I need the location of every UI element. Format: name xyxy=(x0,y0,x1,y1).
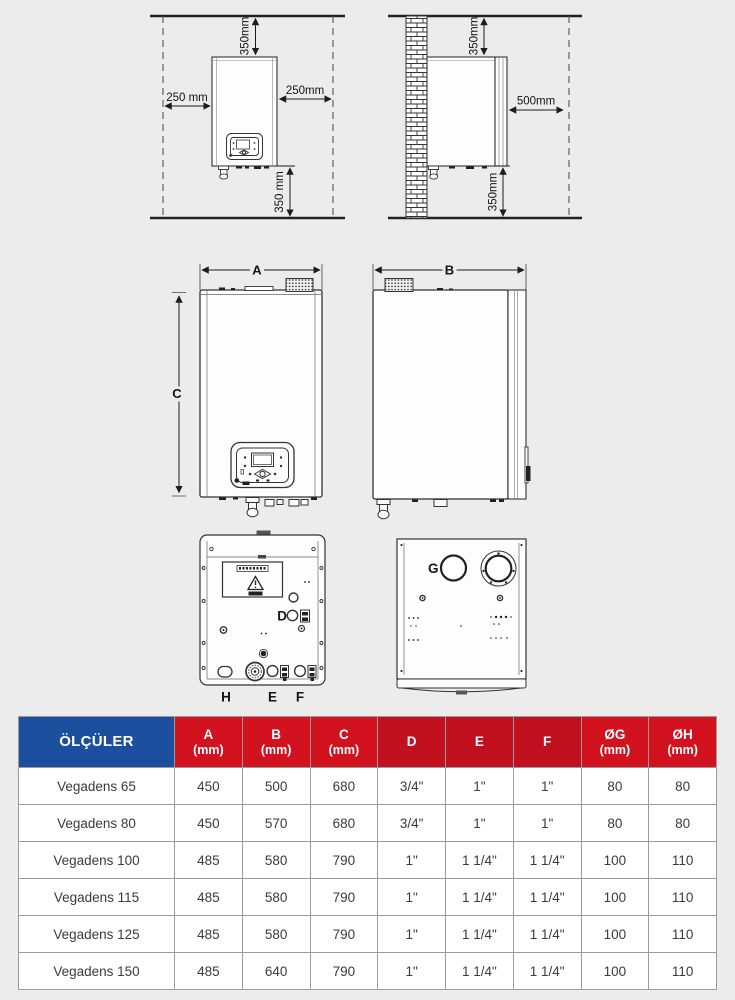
col-header-f: F xyxy=(513,717,581,768)
dim-label-d: D xyxy=(277,609,287,624)
clearance-front-top-label: 350mm xyxy=(240,17,252,55)
table-cell: 110 xyxy=(649,879,717,916)
table-cell: 80 xyxy=(649,768,717,805)
table-cell: 1 1/4" xyxy=(446,953,514,990)
dim-label-f: F xyxy=(296,690,304,705)
dim-label-e: E xyxy=(268,690,277,705)
table-cell: 1 1/4" xyxy=(446,842,514,879)
model-cell: Vegadens 150 xyxy=(19,953,175,990)
clearance-front-right-label: 250mm xyxy=(286,85,324,97)
table-cell: 1 1/4" xyxy=(513,916,581,953)
control-panel xyxy=(231,443,294,488)
dimensions-table: ÖLÇÜLER A(mm) B(mm) C(mm) D E F ØG(mm) Ø… xyxy=(18,716,717,990)
table-cell: 3/4" xyxy=(378,805,446,842)
table-cell: 580 xyxy=(242,842,310,879)
col-header-oh: ØH(mm) xyxy=(649,717,717,768)
col-header-b: B(mm) xyxy=(242,717,310,768)
boiler-side-view xyxy=(373,279,531,519)
table-cell: 450 xyxy=(175,805,243,842)
dim-label-g: G xyxy=(428,561,439,576)
dim-label-h: H xyxy=(221,690,231,705)
clearance-side-front-label: 500mm xyxy=(517,96,555,108)
table-cell: 580 xyxy=(242,879,310,916)
pump-knob xyxy=(246,663,264,681)
table-cell: 1" xyxy=(378,842,446,879)
table-cell: 80 xyxy=(581,768,649,805)
table-cell: 790 xyxy=(310,953,378,990)
model-cell: Vegadens 65 xyxy=(19,768,175,805)
table-cell: 1" xyxy=(446,768,514,805)
clearance-front-diagram: 350mm 250 mm 250mm 350 mm xyxy=(150,16,345,218)
table-cell: 1 1/4" xyxy=(513,879,581,916)
boiler-side-small xyxy=(427,57,507,179)
table-cell: 450 xyxy=(175,768,243,805)
clearance-front-bottom-label: 350 mm xyxy=(274,171,286,213)
table-cell: 485 xyxy=(175,842,243,879)
col-header-olculer: ÖLÇÜLER xyxy=(19,717,175,768)
model-cell: Vegadens 80 xyxy=(19,805,175,842)
clearance-side-top-label: 350mm xyxy=(469,17,481,55)
table-cell: 485 xyxy=(175,879,243,916)
boiler-dimension-sheet: 350mm 250 mm 250mm 350 mm 350mm 500mm 35… xyxy=(0,0,735,1000)
table-cell: 680 xyxy=(310,768,378,805)
front-view-diagram: A C xyxy=(170,263,323,517)
col-header-c: C(mm) xyxy=(310,717,378,768)
bottom-fittings-front xyxy=(246,498,308,517)
table-cell: 3/4" xyxy=(378,768,446,805)
table-row: Vegadens 115 485 580 790 1" 1 1/4" 1 1/4… xyxy=(19,879,717,916)
table-cell: 1" xyxy=(378,953,446,990)
table-cell: 110 xyxy=(649,916,717,953)
model-cell: Vegadens 100 xyxy=(19,842,175,879)
col-header-d: D xyxy=(378,717,446,768)
table-cell: 100 xyxy=(581,916,649,953)
side-view-diagram: B xyxy=(373,263,531,519)
table-row: Vegadens 65 450 500 680 3/4" 1" 1" 80 80 xyxy=(19,768,717,805)
table-cell: 680 xyxy=(310,805,378,842)
col-header-og: ØG(mm) xyxy=(581,717,649,768)
top-view-diagram: G xyxy=(397,539,526,695)
boiler-front-small xyxy=(212,57,277,179)
brick-wall xyxy=(406,16,427,218)
table-cell: 485 xyxy=(175,953,243,990)
table-cell: 1 1/4" xyxy=(446,879,514,916)
table-cell: 80 xyxy=(581,805,649,842)
table-header-row: ÖLÇÜLER A(mm) B(mm) C(mm) D E F ØG(mm) Ø… xyxy=(19,717,717,768)
table-cell: 1" xyxy=(513,805,581,842)
dim-label-a: A xyxy=(252,263,262,278)
top-grille-side xyxy=(385,279,413,292)
col-header-a: A(mm) xyxy=(175,717,243,768)
top-grille xyxy=(286,279,313,292)
table-row: Vegadens 80 450 570 680 3/4" 1" 1" 80 80 xyxy=(19,805,717,842)
table-cell: 110 xyxy=(649,842,717,879)
clearance-side-bottom-label: 350mm xyxy=(488,173,500,211)
bottom-view-diagram: D xyxy=(200,531,325,705)
col-header-e: E xyxy=(446,717,514,768)
terminal-panel xyxy=(223,562,283,597)
dim-label-c: C xyxy=(172,386,182,401)
table-cell: 100 xyxy=(581,953,649,990)
table-cell: 110 xyxy=(649,953,717,990)
connection-g xyxy=(441,556,466,581)
table-cell: 790 xyxy=(310,879,378,916)
table-cell: 570 xyxy=(242,805,310,842)
table-cell: 1" xyxy=(378,879,446,916)
clearance-side-diagram: 350mm 500mm 350mm xyxy=(388,16,582,218)
table-cell: 1 1/4" xyxy=(513,953,581,990)
table-cell: 485 xyxy=(175,916,243,953)
table-cell: 100 xyxy=(581,842,649,879)
table-cell: 1" xyxy=(446,805,514,842)
technical-drawings: 350mm 250 mm 250mm 350 mm 350mm 500mm 35… xyxy=(0,0,735,715)
table-row: Vegadens 100 485 580 790 1" 1 1/4" 1 1/4… xyxy=(19,842,717,879)
table-row: Vegadens 150 485 640 790 1" 1 1/4" 1 1/4… xyxy=(19,953,717,990)
boiler-front-view xyxy=(200,279,322,517)
table-cell: 1 1/4" xyxy=(513,842,581,879)
table-cell: 1" xyxy=(513,768,581,805)
table-cell: 790 xyxy=(310,916,378,953)
table-cell: 790 xyxy=(310,842,378,879)
table-cell: 640 xyxy=(242,953,310,990)
model-cell: Vegadens 125 xyxy=(19,916,175,953)
dim-label-b: B xyxy=(445,263,454,278)
clearance-front-left-label: 250 mm xyxy=(166,92,208,104)
table-cell: 580 xyxy=(242,916,310,953)
connection-h xyxy=(218,667,232,678)
table-cell: 80 xyxy=(649,805,717,842)
table-cell: 500 xyxy=(242,768,310,805)
table-cell: 100 xyxy=(581,879,649,916)
table-cell: 1 1/4" xyxy=(446,916,514,953)
table-cell: 1" xyxy=(378,916,446,953)
flue-outlet xyxy=(481,551,516,586)
model-cell: Vegadens 115 xyxy=(19,879,175,916)
table-row: Vegadens 125 485 580 790 1" 1 1/4" 1 1/4… xyxy=(19,916,717,953)
